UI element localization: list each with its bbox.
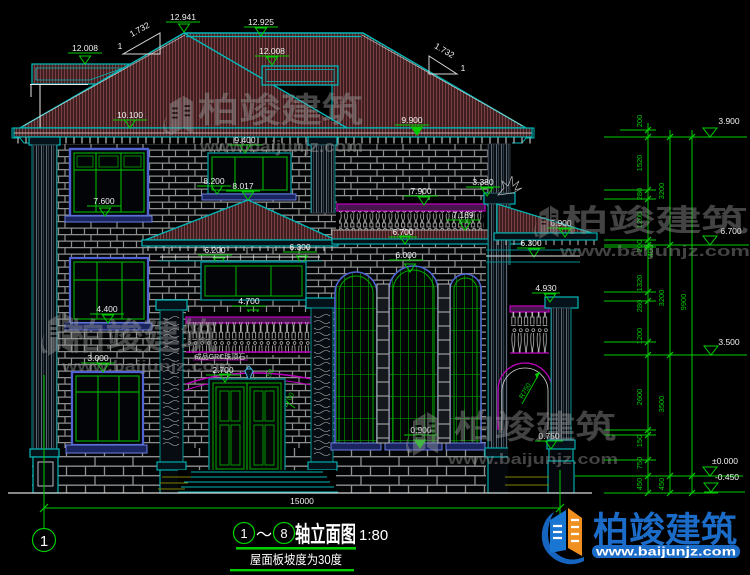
svg-text:6.300: 6.300 [520, 238, 542, 248]
svg-text:10.100: 10.100 [117, 110, 143, 120]
svg-text:750: 750 [635, 457, 644, 470]
svg-text:7.600: 7.600 [93, 196, 115, 206]
svg-text:450: 450 [657, 478, 666, 491]
svg-text:6.300: 6.300 [289, 242, 311, 252]
svg-text:8: 8 [280, 526, 287, 541]
svg-text:3.380: 3.380 [472, 177, 494, 187]
svg-text:8.017: 8.017 [232, 181, 254, 191]
svg-text:280: 280 [635, 188, 644, 201]
svg-text:3.900: 3.900 [718, 116, 740, 126]
svg-text:9900: 9900 [679, 294, 688, 311]
svg-text:6.200: 6.200 [204, 245, 226, 255]
svg-text:轴立面图: 轴立面图 [295, 522, 356, 547]
svg-text:3200: 3200 [657, 183, 666, 200]
svg-text:4.930: 4.930 [535, 283, 557, 293]
svg-text:1: 1 [40, 533, 48, 550]
svg-text:3200: 3200 [657, 290, 666, 307]
svg-text:2600: 2600 [635, 389, 644, 406]
svg-text:1520: 1520 [635, 155, 644, 172]
svg-text:6.000: 6.000 [395, 250, 417, 260]
svg-text:7.189: 7.189 [452, 210, 474, 220]
svg-text:柏竣建筑: 柏竣建筑 [562, 204, 748, 238]
svg-text:12.008: 12.008 [259, 46, 285, 56]
svg-text:7.900: 7.900 [410, 186, 432, 196]
svg-text:4.400: 4.400 [96, 304, 118, 314]
svg-text:www.baijunjz.com: www.baijunjz.com [595, 547, 736, 559]
svg-text:1:80: 1:80 [359, 527, 388, 544]
svg-text:1: 1 [461, 63, 466, 73]
svg-text:3.500: 3.500 [718, 337, 740, 347]
svg-text:屋面板坡度为30度: 屋面板坡度为30度 [250, 552, 342, 567]
svg-text:-0.450: -0.450 [715, 472, 739, 482]
svg-text:柏竣建筑: 柏竣建筑 [68, 316, 218, 357]
svg-text:200: 200 [635, 115, 644, 128]
svg-text:9.900: 9.900 [401, 115, 423, 125]
svg-text:3500: 3500 [657, 396, 666, 413]
svg-text:～: ～ [256, 527, 272, 544]
svg-text:150: 150 [635, 435, 644, 448]
svg-text:www.baijunjz.com: www.baijunjz.com [447, 451, 618, 468]
svg-text:12.925: 12.925 [248, 17, 274, 27]
svg-text:280: 280 [635, 300, 644, 313]
svg-text:4.700: 4.700 [238, 296, 260, 306]
svg-text:8.200: 8.200 [203, 176, 225, 186]
svg-text:柏竣建筑: 柏竣建筑 [454, 409, 616, 445]
svg-text:±0.000: ±0.000 [712, 456, 738, 466]
svg-text:15000: 15000 [290, 496, 314, 506]
svg-text:450: 450 [635, 478, 644, 491]
svg-text:www.baijunjz.com: www.baijunjz.com [61, 358, 232, 375]
svg-text:www.baijunjz.com: www.baijunjz.com [559, 243, 750, 260]
svg-text:柏竣建筑: 柏竣建筑 [593, 510, 737, 550]
svg-text:12.941: 12.941 [170, 12, 196, 22]
svg-text:1: 1 [240, 526, 247, 541]
svg-text:www.baijunjz.com: www.baijunjz.com [199, 137, 363, 156]
svg-text:1: 1 [118, 41, 123, 51]
svg-text:1200: 1200 [635, 328, 644, 345]
svg-text:12.008: 12.008 [72, 43, 98, 53]
svg-text:1320: 1320 [635, 275, 644, 292]
svg-text:柏竣建筑: 柏竣建筑 [198, 91, 363, 130]
